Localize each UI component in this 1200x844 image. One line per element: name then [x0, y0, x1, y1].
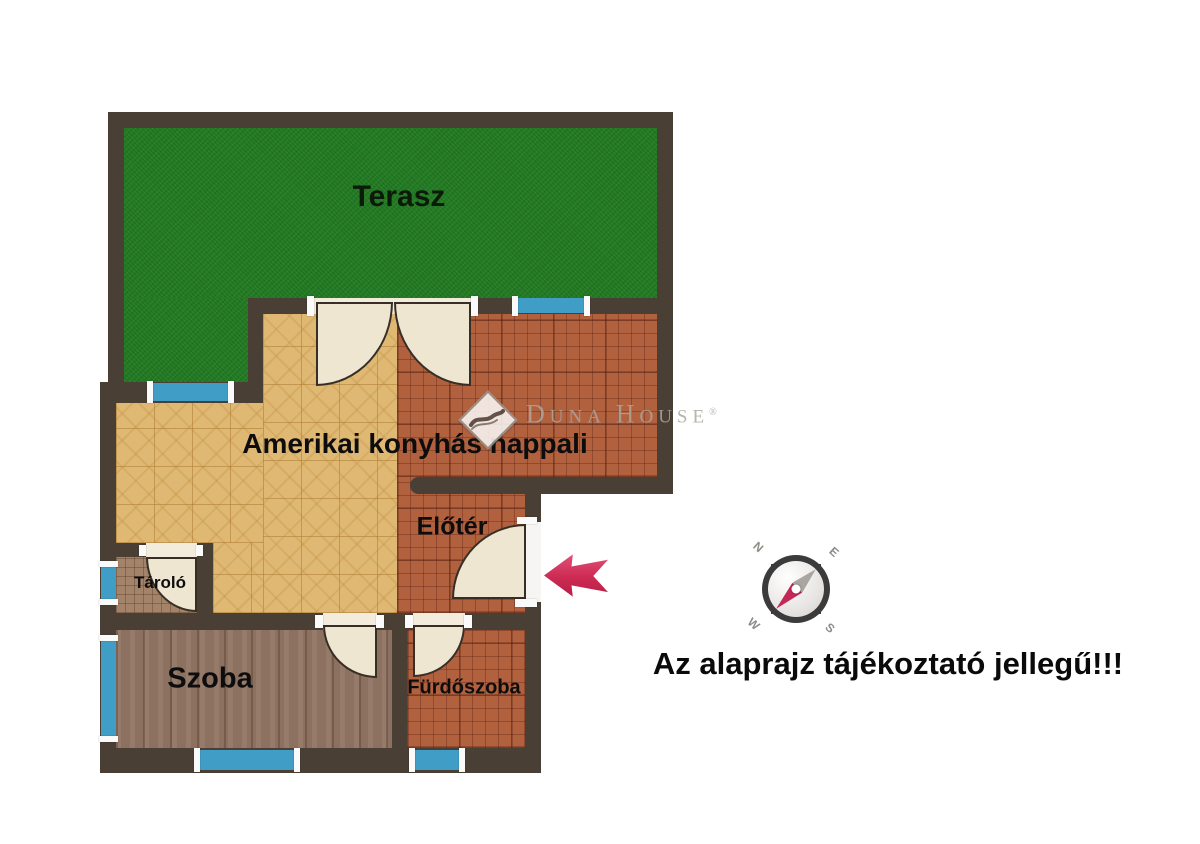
window-cap [409, 748, 415, 772]
storage-door-bracket-right [196, 545, 203, 556]
duna-house-watermark: DUNA HOUSE® [462, 396, 717, 442]
bedroom-label: Szoba [167, 663, 252, 696]
storage-side-window [101, 567, 116, 599]
storage-door-opening [146, 543, 197, 557]
entrance-arrow-icon [544, 553, 608, 598]
window-cap [99, 599, 118, 605]
wall-top [108, 112, 673, 128]
compass-letter-w: W [745, 615, 763, 633]
compass-letter-s: S [822, 620, 837, 636]
window-cap [147, 381, 153, 403]
window-cap [512, 296, 518, 316]
disclaimer-text: Az alaprajz tájékoztató jellegű!!! [653, 646, 1123, 682]
window-cap [459, 748, 465, 772]
wall-left-upper [108, 112, 124, 388]
window-cap [99, 635, 118, 641]
wall-bottom [100, 748, 541, 773]
compass-letter-e: E [826, 544, 841, 560]
bathroom-label: Fürdőszoba [407, 677, 520, 700]
bathroom-bottom-window [415, 750, 459, 770]
duna-house-wordmark: DUNA HOUSE® [526, 400, 717, 430]
window-cap [99, 561, 118, 567]
compass-letter-n: N [750, 539, 766, 555]
compass-center-dot [792, 585, 801, 594]
floorplan-canvas: Terasz Amerikai konyhás nappali Előtér T… [0, 0, 1200, 844]
compass-rose-icon: N E W S [762, 555, 830, 623]
living-room-parquet-strip [213, 543, 263, 613]
wall-bedroom-bathroom-divider [392, 613, 407, 748]
wave-glyph-icon [469, 407, 505, 433]
storage-door-bracket-left [139, 545, 146, 556]
bedroom-door-bracket-right [376, 615, 384, 628]
foyer-label: Előtér [417, 513, 488, 542]
terrace-label: Terasz [353, 180, 446, 214]
window-cap [584, 296, 590, 316]
bathroom-door-bracket-right [464, 615, 472, 628]
window-cap [228, 381, 234, 403]
entrance-door-opening [525, 522, 541, 602]
storage-label: Tároló [134, 573, 186, 593]
bedroom-door-bracket-left [315, 615, 323, 628]
living-room-parquet-left [116, 403, 263, 543]
bedroom-side-window [101, 641, 116, 736]
window-cap [294, 748, 300, 772]
kitchen-terrace-window [518, 298, 584, 313]
french-door-bracket-right [471, 296, 478, 316]
entrance-door-bracket-bottom [515, 599, 537, 607]
bedroom-bottom-window [200, 750, 294, 770]
wall-terrace-divider [248, 298, 263, 388]
entrance-door-bracket-top [517, 517, 537, 524]
window-cap [194, 748, 200, 772]
brand-letter: D [526, 399, 550, 428]
bathroom-door-bracket-left [405, 615, 413, 628]
registered-mark: ® [709, 407, 717, 418]
brand-letters: OUSE [639, 406, 709, 427]
brand-letter: H [616, 399, 640, 428]
french-door-bracket-left [307, 296, 314, 316]
brand-letters: UNA [550, 406, 606, 427]
terrace-floor-extension [124, 298, 248, 382]
wall-kitchen-foyer-stub [410, 477, 673, 494]
terrace-extension-window [153, 383, 228, 401]
window-cap [99, 736, 118, 742]
